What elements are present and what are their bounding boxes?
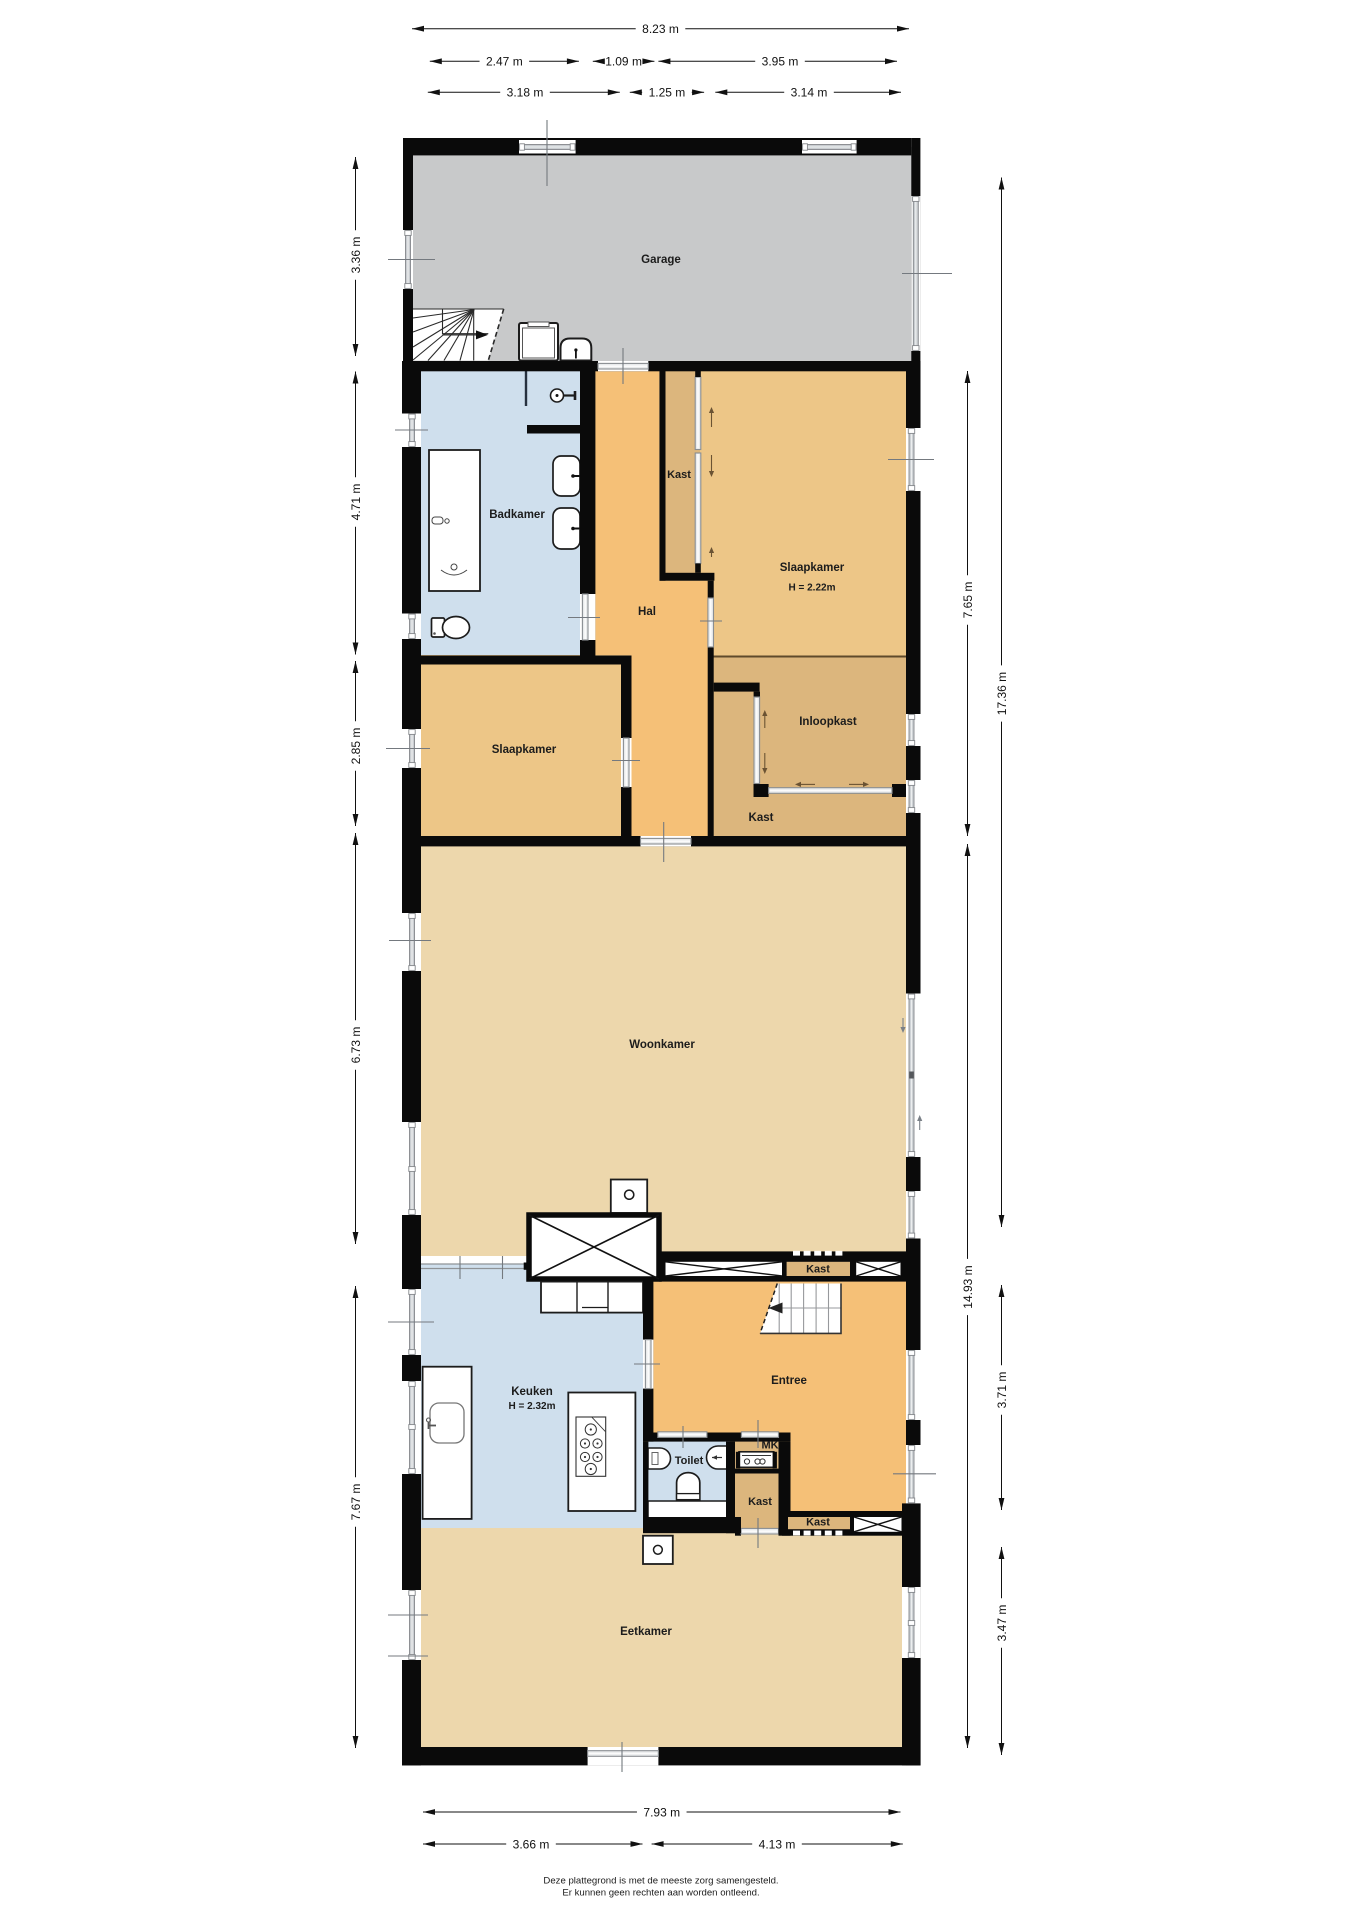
svg-text:3.18 m: 3.18 m	[507, 86, 544, 100]
svg-text:Kast: Kast	[667, 469, 691, 481]
svg-text:Kast: Kast	[749, 812, 774, 824]
svg-text:Woonkamer: Woonkamer	[629, 1039, 695, 1051]
svg-text:2.85 m: 2.85 m	[349, 728, 363, 765]
svg-text:Kast: Kast	[748, 1496, 772, 1508]
svg-text:MK: MK	[761, 1440, 778, 1452]
svg-text:Er kunnen geen rechten aan wor: Er kunnen geen rechten aan worden ontlee…	[562, 1888, 759, 1899]
svg-text:4.13 m: 4.13 m	[759, 1837, 796, 1851]
svg-text:2.47 m: 2.47 m	[486, 55, 523, 69]
svg-text:Slaapkamer: Slaapkamer	[492, 744, 557, 756]
svg-text:Keuken: Keuken	[511, 1386, 553, 1398]
svg-text:H = 2.32m: H = 2.32m	[509, 1401, 556, 1412]
svg-text:Badkamer: Badkamer	[489, 509, 545, 521]
svg-text:H = 2.22m: H = 2.22m	[789, 583, 836, 594]
svg-text:17.36 m: 17.36 m	[995, 672, 1009, 715]
svg-text:Deze plattegrond is met de mee: Deze plattegrond is met de meeste zorg s…	[543, 1876, 778, 1887]
svg-text:3.36 m: 3.36 m	[349, 237, 363, 274]
svg-text:1.25 m: 1.25 m	[649, 86, 686, 100]
svg-text:Kast: Kast	[806, 1264, 830, 1276]
svg-text:6.73 m: 6.73 m	[349, 1027, 363, 1064]
svg-text:14.93 m: 14.93 m	[961, 1265, 975, 1308]
svg-text:7.93 m: 7.93 m	[643, 1805, 680, 1819]
svg-text:1.09 m: 1.09 m	[605, 55, 642, 69]
svg-text:4.71 m: 4.71 m	[349, 484, 363, 521]
svg-text:Hal: Hal	[638, 606, 656, 618]
svg-text:3.47 m: 3.47 m	[995, 1605, 1009, 1642]
svg-text:Inloopkast: Inloopkast	[799, 716, 857, 728]
svg-text:3.95 m: 3.95 m	[762, 55, 799, 69]
svg-text:Garage: Garage	[641, 254, 681, 266]
svg-text:Eetkamer: Eetkamer	[620, 1626, 672, 1638]
svg-text:3.66 m: 3.66 m	[513, 1837, 550, 1851]
svg-text:8.23 m: 8.23 m	[642, 22, 679, 36]
svg-text:Kast: Kast	[806, 1517, 830, 1529]
svg-text:Entree: Entree	[771, 1375, 807, 1387]
svg-text:Toilet: Toilet	[675, 1455, 704, 1467]
svg-text:3.14 m: 3.14 m	[791, 86, 828, 100]
svg-text:7.65 m: 7.65 m	[961, 582, 975, 619]
svg-text:3.71 m: 3.71 m	[995, 1372, 1009, 1409]
svg-text:7.67 m: 7.67 m	[349, 1484, 363, 1521]
svg-text:Slaapkamer: Slaapkamer	[780, 562, 845, 574]
